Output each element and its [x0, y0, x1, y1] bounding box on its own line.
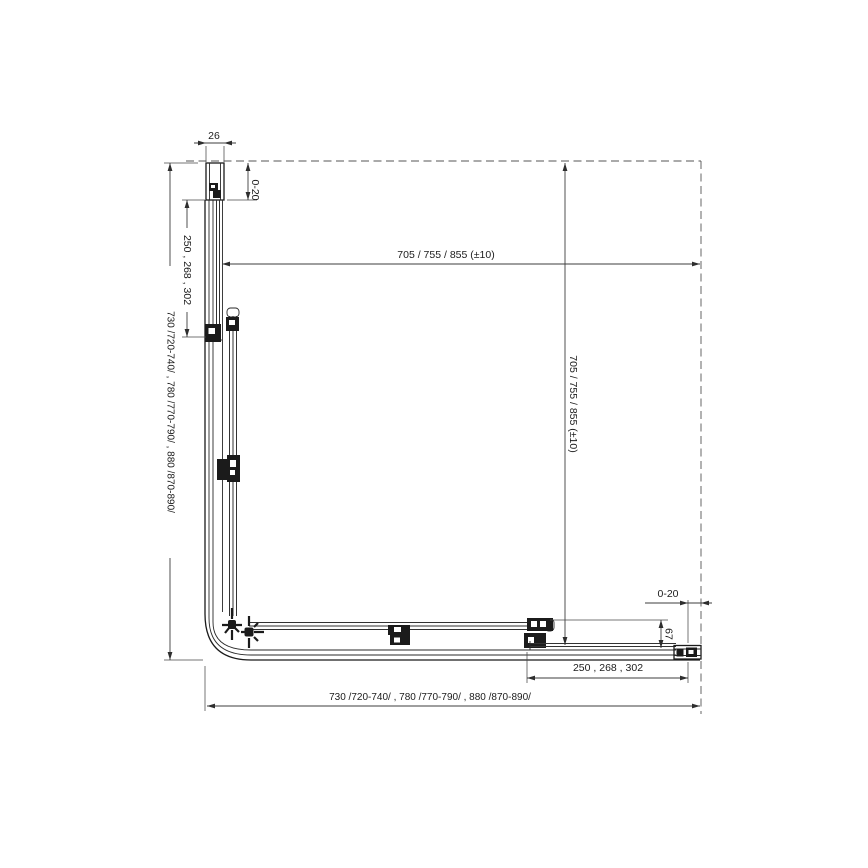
dimension-label: 0-20 [657, 588, 678, 600]
fixed-panel-bottom [530, 641, 676, 650]
dimension-right-opening: 705 / 755 / 855 (±10) [563, 163, 580, 645]
dimension-top-profile-width: 26 [194, 130, 236, 162]
dimension-label: 705 / 755 / 855 (±10) [567, 355, 579, 452]
dimension-left-fixed-panel: 250 , 268 , 302 [181, 200, 206, 337]
fixed-panel-left [214, 200, 223, 612]
technical-drawing: 26 0-20 250 , 268 , 302 730 /720-740/ , … [0, 0, 868, 868]
technical-drawing-page: 26 0-20 250 , 268 , 302 730 /720-740/ , … [0, 0, 868, 868]
door-handles [222, 608, 264, 648]
handle-left-door [222, 608, 242, 640]
bracket-bottom-mid [388, 625, 410, 645]
dimension-top-wall-gap: 0-20 [227, 163, 261, 201]
dimension-label: 250 , 268 , 302 [181, 235, 193, 305]
handle-bottom-door [241, 616, 264, 648]
wall-profile-right [674, 646, 701, 660]
wall-profile-top [206, 163, 224, 200]
dimension-label: 0-20 [249, 179, 261, 200]
dimension-label: 67 [663, 628, 675, 640]
dimension-right-wall-gap: 0-20 [645, 588, 712, 643]
dimension-top-opening: 705 / 755 / 855 (±10) [222, 249, 700, 266]
dimension-bottom-fixed-panel: 250 , 268 , 302 [527, 652, 688, 683]
sliding-door-bottom [249, 618, 554, 648]
corner-frame [205, 200, 700, 660]
bracket-left-mid [217, 455, 240, 482]
dimension-label: 730 /720-740/ , 780 /770-790/ , 880 /870… [164, 311, 175, 513]
dimension-label: 250 , 268 , 302 [573, 662, 643, 674]
bracket-left-top [205, 317, 239, 342]
dimension-label: 26 [208, 130, 220, 142]
dimension-label: 730 /720-740/ , 780 /770-790/ , 880 /870… [329, 692, 531, 703]
dimension-label: 705 / 755 / 855 (±10) [397, 249, 494, 261]
